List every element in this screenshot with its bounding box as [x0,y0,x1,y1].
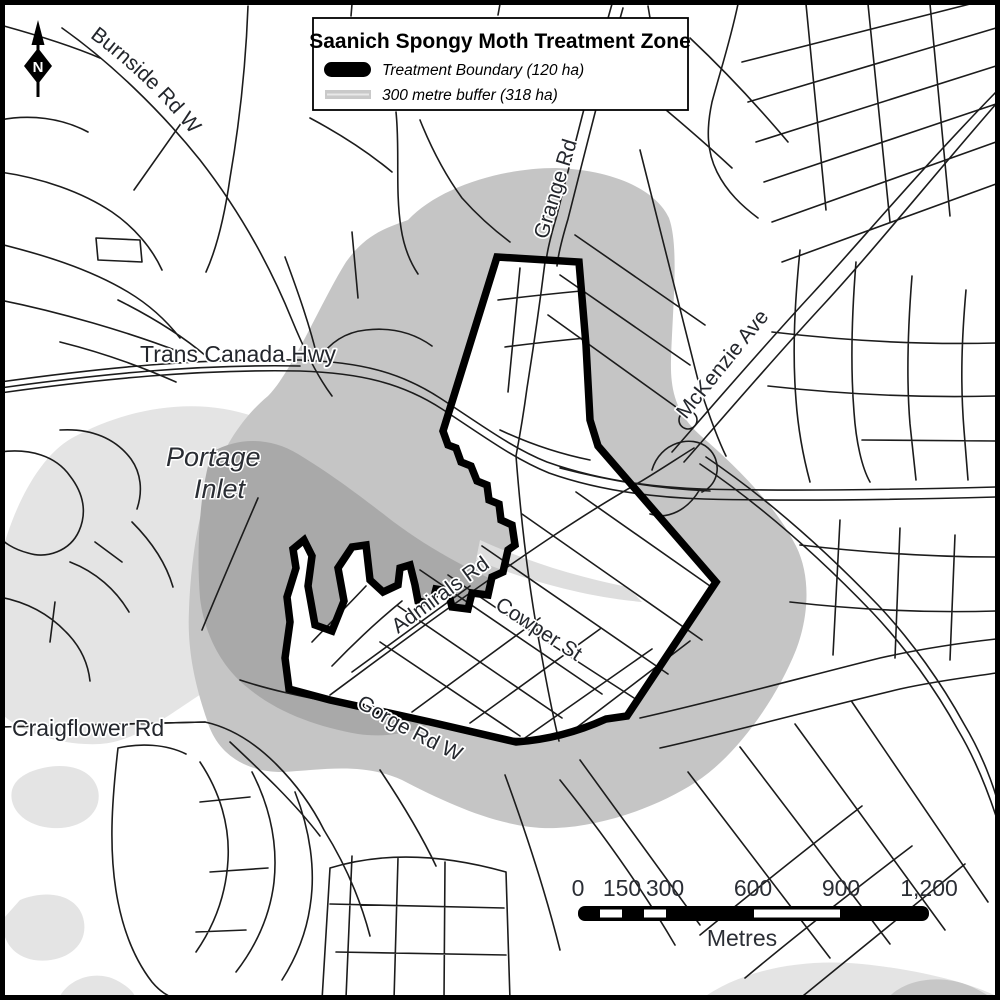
scale-tick-900: 900 [822,875,860,901]
legend-title: Saanich Spongy Moth Treatment Zone [309,30,691,53]
scale-tick-1200: 1,200 [900,875,958,901]
scale-bar-segment-1 [600,910,622,918]
legend-item-buffer: 300 metre buffer (318 ha) [382,87,558,104]
scale-tick-150: 150 [603,875,641,901]
scale-tick-600: 600 [734,875,772,901]
treatment-boundary-swatch [324,62,371,77]
label-inlet: Inlet [194,474,247,504]
legend: Saanich Spongy Moth Treatment Zone Treat… [309,18,691,110]
label-craigflower: Craigflower Rd [12,715,164,741]
scale-bar-body [578,906,929,921]
scale-bar-segment-2 [644,910,666,918]
scale-tick-300: 300 [646,875,684,901]
label-trans-canada: Trans Canada Hwy [140,341,337,367]
scale-tick-0: 0 [572,875,585,901]
scale-unit-label: Metres [707,925,777,951]
legend-item-boundary: Treatment Boundary (120 ha) [382,62,584,79]
label-portage: Portage [166,442,261,472]
scale-bar-segment-3 [754,910,840,918]
treatment-zone-map: Burnside Rd W Trans Canada Hwy Grange Rd… [0,0,1000,1000]
north-arrow-letter: N [33,59,44,76]
